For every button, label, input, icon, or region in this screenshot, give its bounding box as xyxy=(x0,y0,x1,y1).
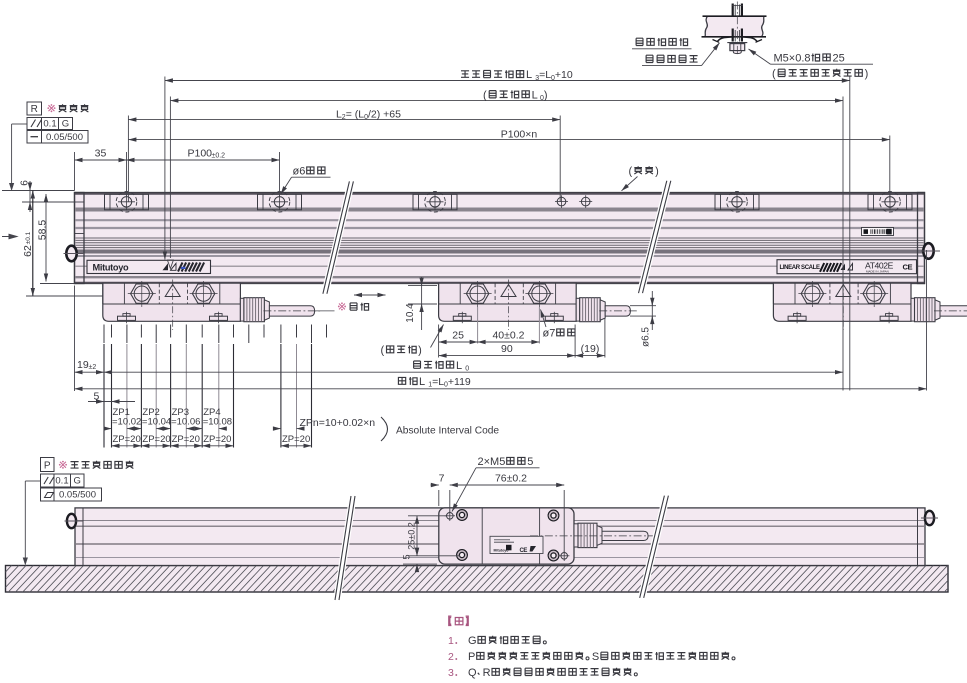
svg-text:P100×n: P100×n xyxy=(501,128,538,140)
svg-text:P100: P100 xyxy=(188,148,213,160)
svg-text:2: 2 xyxy=(448,651,454,663)
svg-text:Q: Q xyxy=(468,667,477,679)
svg-text:76±0.2: 76±0.2 xyxy=(495,473,527,485)
svg-text:/2) +65: /2) +65 xyxy=(368,108,401,120)
svg-text:L: L xyxy=(526,69,532,81)
svg-text:0: 0 xyxy=(465,365,469,372)
svg-text:25±0.2: 25±0.2 xyxy=(407,522,417,549)
svg-text:Absolute Interval Code: Absolute Interval Code xyxy=(396,426,499,437)
svg-text:MADE IN JAPAN: MADE IN JAPAN xyxy=(866,270,889,274)
svg-text:2×M5: 2×M5 xyxy=(478,456,506,468)
svg-text:0.05/500: 0.05/500 xyxy=(59,490,96,501)
svg-text:5: 5 xyxy=(527,456,533,468)
svg-text:25: 25 xyxy=(833,53,845,65)
svg-text:LINEAR SCALE: LINEAR SCALE xyxy=(780,265,820,271)
svg-text:90: 90 xyxy=(501,343,513,355)
svg-text:ø6.5: ø6.5 xyxy=(641,327,652,347)
svg-text:6: 6 xyxy=(20,180,31,186)
svg-text:5: 5 xyxy=(94,391,100,403)
svg-text:1: 1 xyxy=(448,635,454,647)
svg-text:L: L xyxy=(532,89,538,101)
svg-text:ZP=20: ZP=20 xyxy=(142,434,170,445)
svg-text:=10.04: =10.04 xyxy=(142,417,171,428)
svg-text:): ) xyxy=(655,166,659,178)
svg-text:= (L: = (L xyxy=(346,108,365,120)
svg-text:ø6: ø6 xyxy=(293,166,306,178)
svg-text:M5×0.8: M5×0.8 xyxy=(774,53,811,65)
svg-text:ZP=20: ZP=20 xyxy=(282,434,310,445)
svg-text:(: ( xyxy=(629,166,633,178)
svg-text:19: 19 xyxy=(77,359,89,371)
svg-text:R: R xyxy=(483,667,491,679)
svg-text:): ) xyxy=(418,345,422,357)
svg-text:40±0.2: 40±0.2 xyxy=(492,330,524,342)
svg-text:58.5: 58.5 xyxy=(37,220,49,241)
svg-text:=10.02: =10.02 xyxy=(112,417,141,428)
svg-text:=10.08: =10.08 xyxy=(203,417,232,428)
svg-text:0.05/500: 0.05/500 xyxy=(46,132,83,143)
svg-text:(19): (19) xyxy=(581,343,600,355)
svg-text:ZP=20: ZP=20 xyxy=(113,434,141,445)
svg-text:Mitutoyo: Mitutoyo xyxy=(93,262,130,272)
svg-text:ø7: ø7 xyxy=(543,328,556,340)
svg-text:7: 7 xyxy=(439,473,445,485)
svg-text:L: L xyxy=(456,360,462,372)
svg-text:+10: +10 xyxy=(555,69,573,81)
svg-text:): ) xyxy=(544,89,548,101)
svg-text:=L: =L xyxy=(432,376,444,388)
svg-text:): ) xyxy=(865,68,869,80)
svg-text:+119: +119 xyxy=(448,376,471,388)
svg-text:±2: ±2 xyxy=(89,364,97,371)
svg-text:10.4: 10.4 xyxy=(405,303,416,323)
svg-text:G: G xyxy=(62,119,69,130)
svg-text:CE: CE xyxy=(520,548,528,554)
svg-text:3: 3 xyxy=(448,667,454,679)
svg-text:±0.2: ±0.2 xyxy=(212,153,226,160)
svg-text:Mitutoyo: Mitutoyo xyxy=(494,549,510,553)
svg-text:±0.1: ±0.1 xyxy=(25,231,32,244)
svg-text:(: ( xyxy=(483,89,487,101)
svg-text:5: 5 xyxy=(402,554,412,559)
svg-text:(: ( xyxy=(381,345,385,357)
svg-text:0.1: 0.1 xyxy=(43,119,56,130)
svg-text:R: R xyxy=(31,104,38,115)
svg-text:S: S xyxy=(592,651,599,663)
svg-text:ZP=20: ZP=20 xyxy=(203,434,231,445)
svg-text:P: P xyxy=(44,461,51,472)
svg-text:ZP=20: ZP=20 xyxy=(172,434,200,445)
svg-text:35: 35 xyxy=(95,148,107,160)
svg-text:0.1: 0.1 xyxy=(55,476,68,487)
svg-text:62: 62 xyxy=(22,245,34,257)
svg-text:(: ( xyxy=(772,68,776,80)
svg-text:ZPn=10+0.02×n: ZPn=10+0.02×n xyxy=(300,417,376,429)
svg-text:=L: =L xyxy=(539,69,551,81)
svg-text:L: L xyxy=(419,376,425,388)
svg-text:25: 25 xyxy=(452,330,464,342)
svg-text:=10.06: =10.06 xyxy=(171,417,200,428)
svg-text:G: G xyxy=(74,476,81,487)
svg-text:G: G xyxy=(468,635,477,647)
svg-text:CE: CE xyxy=(903,263,913,272)
svg-text:P: P xyxy=(468,651,475,663)
